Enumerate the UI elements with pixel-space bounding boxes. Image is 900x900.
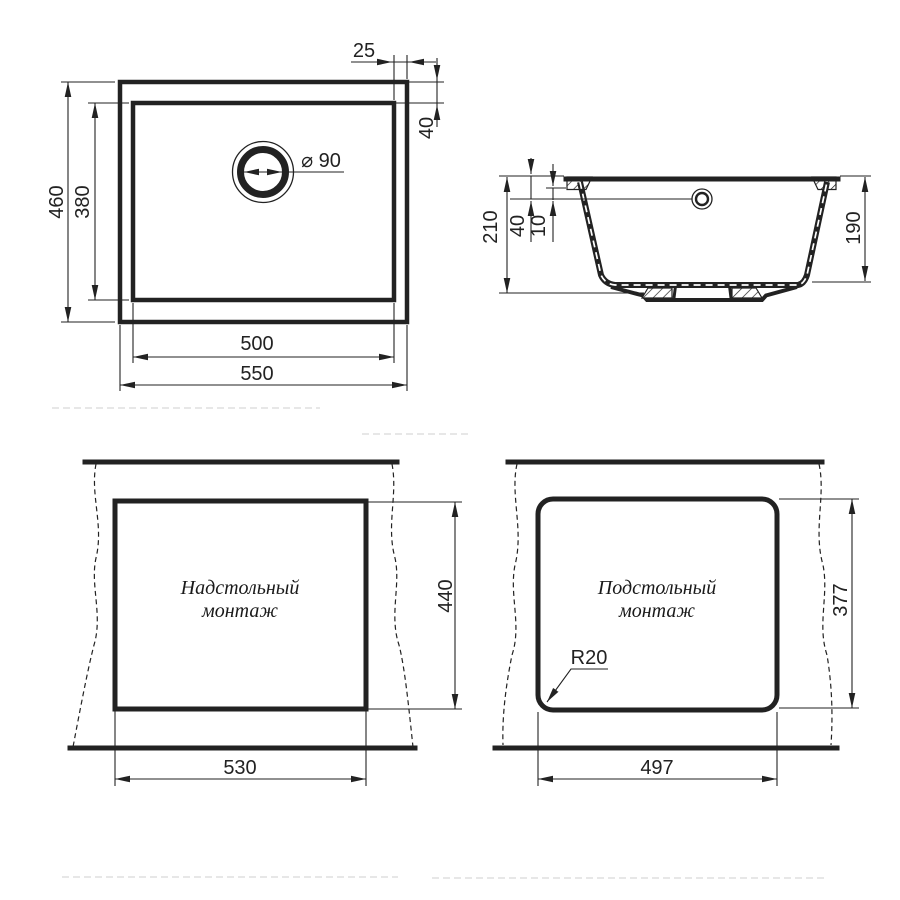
break-line-left <box>503 464 518 745</box>
mount-label-line2: монтаж <box>201 600 278 622</box>
dim-label-inner-width: 500 <box>240 333 273 355</box>
drain-diameter-label: ⌀ 90 <box>301 150 341 172</box>
dim-label-rim-side: 25 <box>353 40 375 62</box>
mount-label-line1: Подстольный <box>597 577 716 599</box>
dim-label-topmount-width: 530 <box>223 757 256 779</box>
section-view: 210 40 10 190 <box>480 158 871 300</box>
bowl-inner-rect <box>133 103 394 300</box>
drawing-canvas: ⌀ 90 460 380 500 550 25 40 <box>0 0 900 900</box>
drain-recess-edge <box>674 286 676 298</box>
dim-label-rim-top: 40 <box>416 117 438 139</box>
dim-label-outer-height: 460 <box>46 185 68 218</box>
overcounter-view: Надстольный монтаж 440 530 <box>70 462 462 786</box>
dim-label-topmount-height: 440 <box>435 579 457 612</box>
right-foot-hatch <box>732 288 762 298</box>
left-foot-hatch <box>642 288 672 298</box>
dim-label-undermount-height: 377 <box>830 583 852 616</box>
mount-label-line1: Надстольный <box>180 577 300 599</box>
break-line-right <box>392 464 413 747</box>
mount-label-line2: монтаж <box>618 600 695 622</box>
sink-technical-drawing: ⌀ 90 460 380 500 550 25 40 <box>0 0 900 900</box>
overflow-circle <box>696 193 708 205</box>
dim-label-overflow-from-rim: 40 <box>507 215 529 237</box>
dim-label-flange-offset: 10 <box>528 215 550 237</box>
undercounter-view: Подстольный монтаж R20 377 497 <box>495 462 859 786</box>
corner-radius-label: R20 <box>571 647 608 669</box>
dim-label-total-depth: 210 <box>480 210 502 243</box>
dim-label-inner-height: 380 <box>72 185 94 218</box>
dim-label-undermount-width: 497 <box>640 757 673 779</box>
drain-recess-edge <box>730 286 732 298</box>
radius-leader-line <box>547 669 608 702</box>
dim-label-bowl-depth: 190 <box>843 211 865 244</box>
break-line-left <box>73 464 99 747</box>
dim-label-outer-width: 550 <box>240 363 273 385</box>
top-view: ⌀ 90 460 380 500 550 25 40 <box>46 40 444 391</box>
